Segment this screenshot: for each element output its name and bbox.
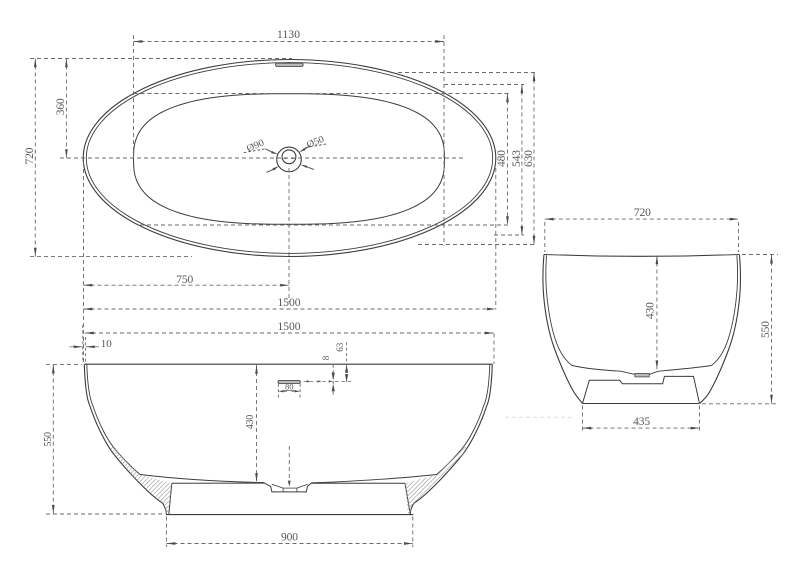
svg-text:550: 550	[760, 321, 772, 338]
svg-text:720: 720	[24, 147, 36, 164]
svg-text:720: 720	[634, 207, 651, 219]
svg-text:900: 900	[281, 532, 298, 544]
svg-text:430: 430	[245, 415, 256, 430]
svg-text:750: 750	[176, 274, 193, 286]
svg-text:63: 63	[335, 342, 345, 352]
svg-text:80: 80	[285, 381, 294, 391]
svg-text:435: 435	[633, 416, 650, 428]
svg-text:550: 550	[43, 432, 54, 447]
svg-text:543: 543	[511, 150, 523, 167]
svg-text:480: 480	[496, 150, 508, 167]
svg-text:630: 630	[523, 150, 535, 167]
svg-text:430: 430	[645, 302, 657, 319]
svg-text:360: 360	[55, 98, 67, 115]
svg-text:Ø90: Ø90	[245, 137, 266, 154]
svg-text:1500: 1500	[278, 297, 301, 309]
svg-text:1500: 1500	[278, 321, 301, 333]
svg-text:1130: 1130	[277, 29, 300, 41]
svg-text:8: 8	[321, 355, 331, 360]
svg-text:Ø50: Ø50	[305, 134, 326, 151]
svg-text:10: 10	[101, 338, 113, 350]
